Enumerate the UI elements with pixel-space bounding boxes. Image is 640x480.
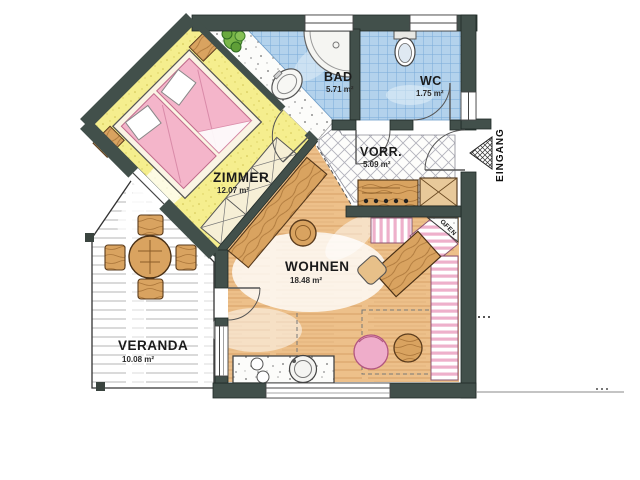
toilet <box>394 31 416 66</box>
wohnen-label: WOHNEN <box>285 259 350 274</box>
zimmer-area: 12.07 m² <box>217 186 249 195</box>
burner <box>251 358 263 370</box>
wall-windbreak <box>461 119 491 129</box>
bad-area: 5.71 m² <box>326 85 354 94</box>
floor-plan-canvas: OFEN <box>0 0 640 480</box>
armchair-pink <box>354 335 388 369</box>
closet <box>420 178 457 206</box>
wall-under-wc <box>450 120 461 130</box>
wohnen-area: 18.48 m² <box>290 276 322 285</box>
veranda-post <box>85 233 94 242</box>
window-left-living <box>215 326 228 376</box>
floor-plan: OFEN <box>0 0 640 480</box>
kitchenette <box>358 180 418 206</box>
chair-wood <box>394 334 422 362</box>
wall-under-wc <box>390 120 413 130</box>
entrance-arrow-icon <box>470 137 492 169</box>
wall-right-lower <box>461 172 476 398</box>
vorraum-label: VORR. <box>360 145 402 159</box>
burner <box>257 371 269 383</box>
dimension-marks <box>476 316 624 392</box>
veranda-area: 10.08 m² <box>122 355 154 364</box>
wall-under-bad <box>332 120 356 130</box>
wall-left-living <box>215 376 228 383</box>
kitchen-counter <box>233 356 334 384</box>
veranda-label: VERANDA <box>118 338 188 353</box>
window-bottom <box>266 383 390 398</box>
zimmer-label: ZIMMER <box>213 170 269 185</box>
bad-label: BAD <box>324 70 353 84</box>
window-top-2 <box>410 15 457 31</box>
window-right-wc <box>461 92 476 120</box>
wall-left-living <box>215 318 228 326</box>
wc-label: WC <box>420 74 442 88</box>
wc-area: 1.75 m² <box>416 89 444 98</box>
entrance-label: EINGANG <box>495 128 506 182</box>
veranda-chair-east <box>176 245 196 270</box>
wall-vorr-wohnen <box>346 206 461 217</box>
veranda-chair-south <box>138 279 163 299</box>
veranda-post <box>96 382 105 391</box>
vorraum-area: 5.09 m² <box>363 160 391 169</box>
stool <box>290 220 316 246</box>
veranda-chair-north <box>138 215 163 235</box>
window-top-1 <box>305 15 353 31</box>
wall-left-living <box>215 250 228 288</box>
veranda-chair-west <box>105 245 125 270</box>
